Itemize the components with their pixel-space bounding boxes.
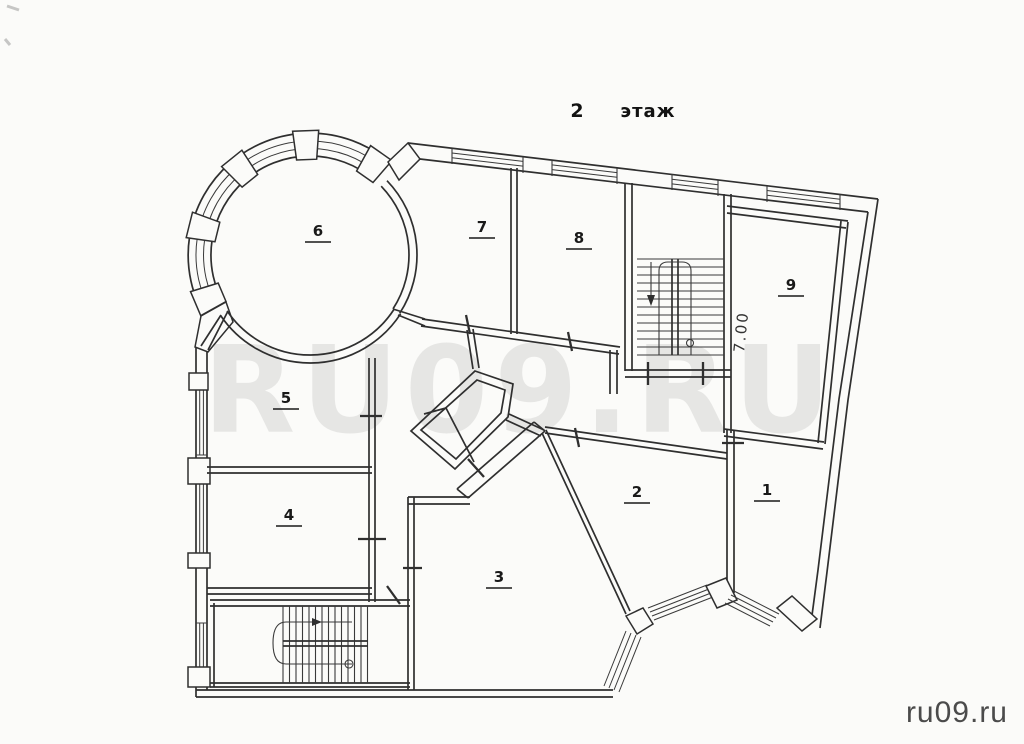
floor-word: этаж	[620, 101, 675, 122]
svg-text:1: 1	[762, 481, 772, 499]
svg-text:4: 4	[284, 506, 294, 524]
svg-text:6: 6	[313, 222, 323, 240]
svg-text:5: 5	[281, 389, 291, 407]
svg-text:8: 8	[574, 229, 584, 247]
floorplan-drawing: RU09.RU	[0, 0, 1024, 744]
svg-text:2: 2	[632, 483, 642, 501]
site-watermark: ru09.ru	[906, 696, 1008, 730]
scanned-floorplan-page: RU09.RU	[0, 0, 1024, 744]
svg-text:9: 9	[786, 276, 796, 294]
floor-number: 2	[570, 100, 583, 122]
svg-text:3: 3	[494, 568, 504, 586]
svg-text:7: 7	[477, 218, 487, 236]
